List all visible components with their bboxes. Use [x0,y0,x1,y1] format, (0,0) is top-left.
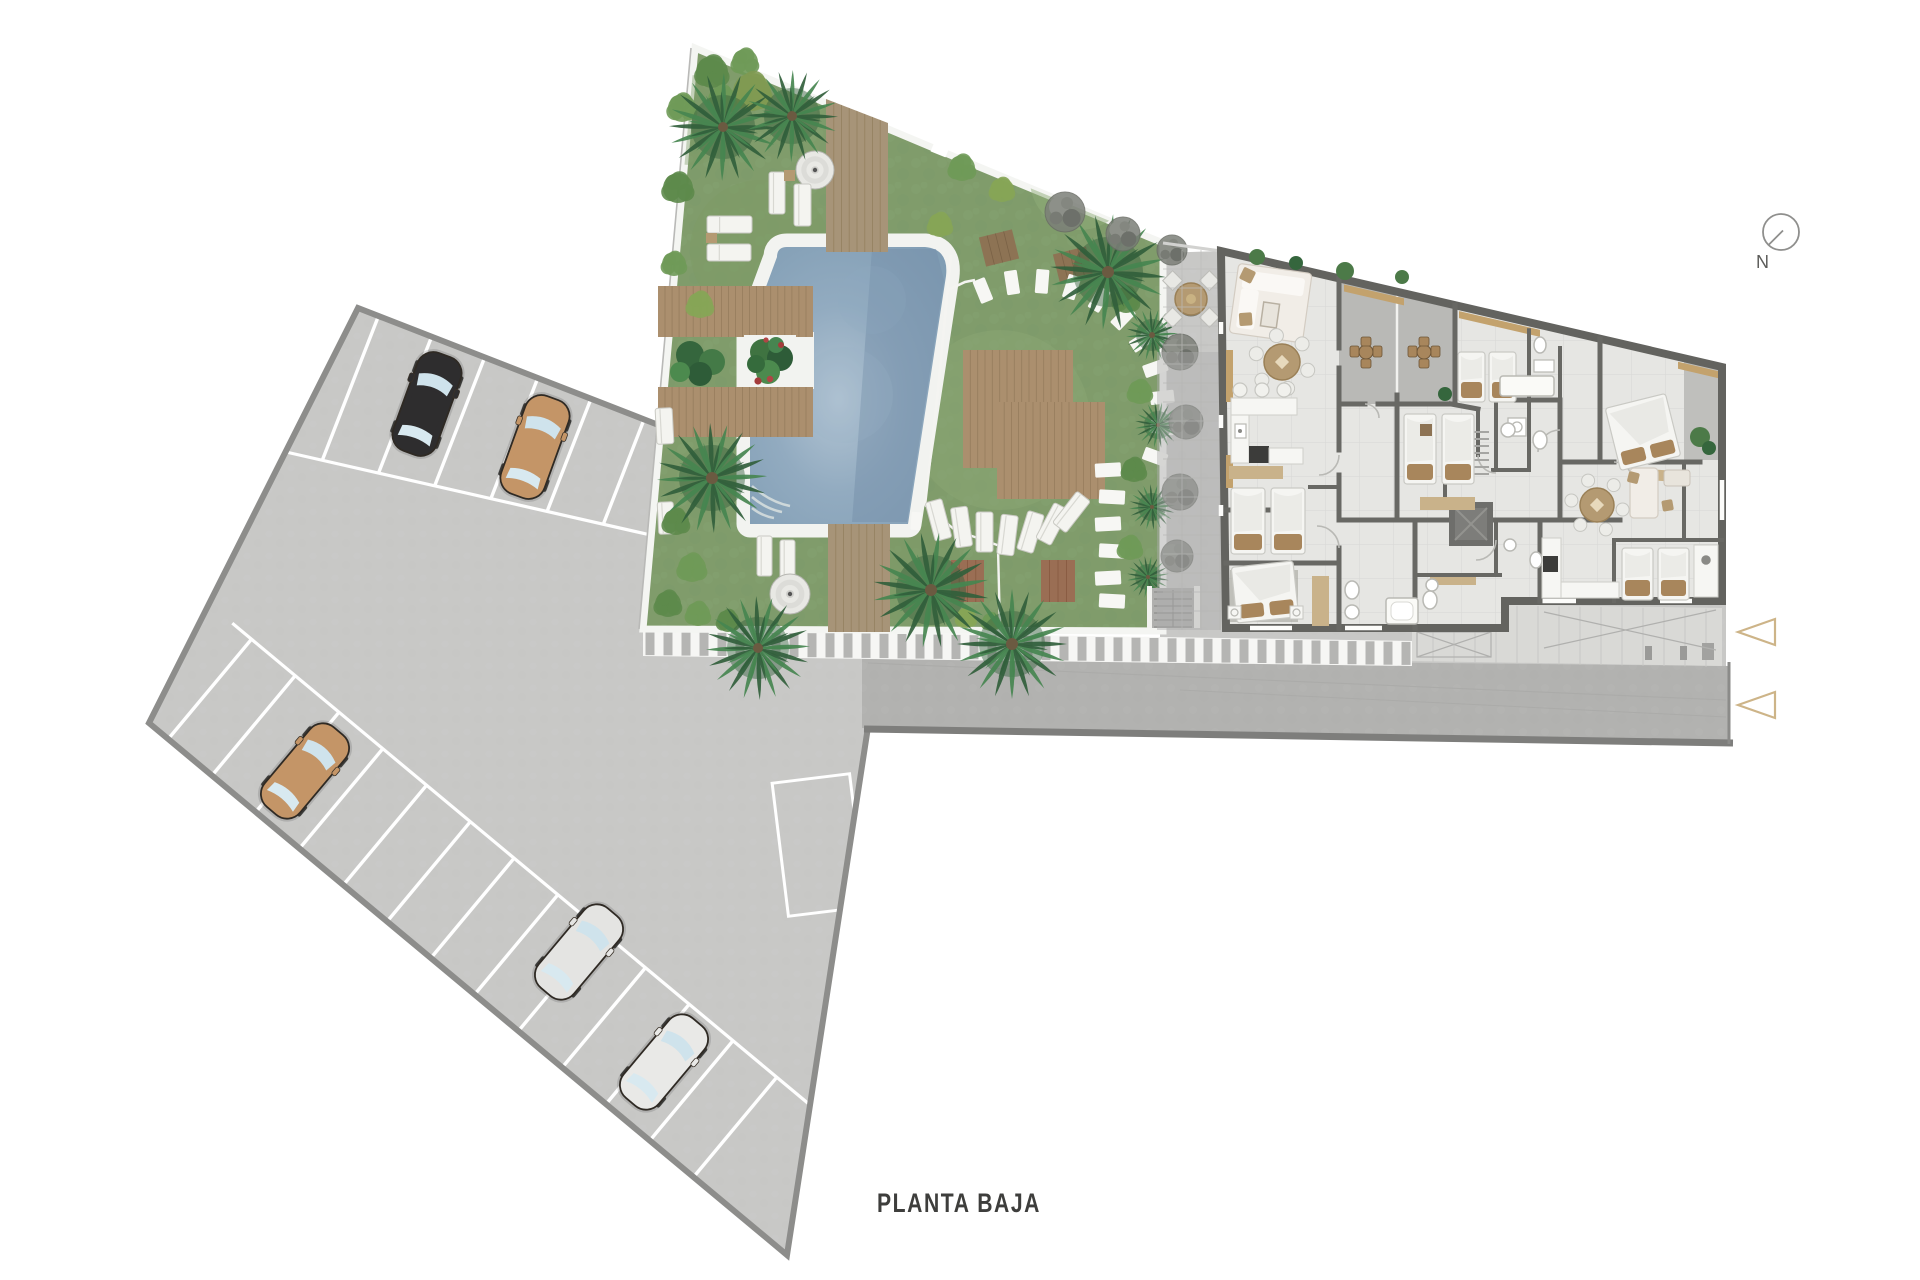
svg-text:N: N [1756,252,1769,272]
svg-text:PLANTA BAJA: PLANTA BAJA [877,1188,1041,1218]
